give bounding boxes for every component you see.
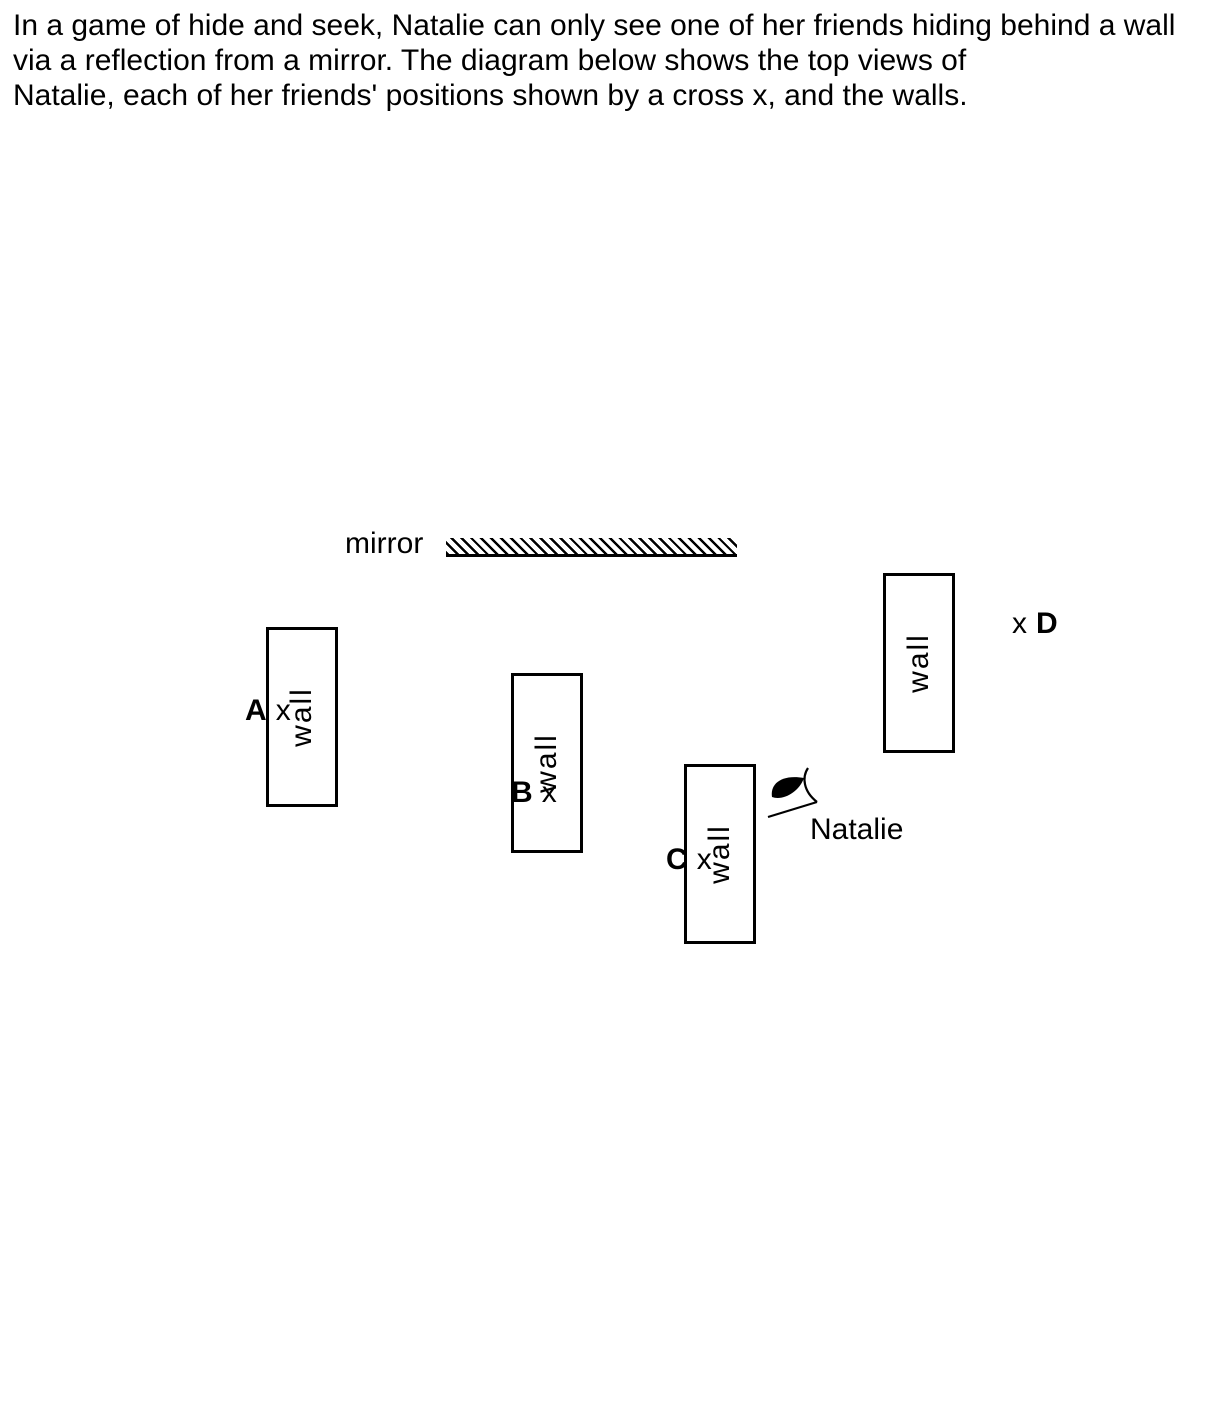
question-paragraph: Which of her friends, A, B, C or D, can … bbox=[13, 1298, 1205, 1406]
wall-label-a: wall bbox=[287, 687, 317, 747]
friend-c-cross: x bbox=[697, 843, 712, 876]
wall-rect-d: wall bbox=[883, 573, 955, 753]
diagram: mirror wall wall wall wall Ax Bx Cx xD bbox=[0, 0, 1208, 1406]
friend-c-letter: C bbox=[666, 843, 688, 876]
friend-a-marker: Ax bbox=[195, 666, 291, 756]
natalie-label: Natalie bbox=[810, 815, 903, 845]
friend-b-letter: B bbox=[511, 776, 533, 809]
question-line-1: Which of her friends, A, B, C or D, can … bbox=[13, 1368, 1205, 1406]
friend-d-cross: x bbox=[1012, 607, 1027, 640]
friend-b-cross: x bbox=[542, 776, 557, 809]
friend-d-letter: D bbox=[1036, 607, 1058, 640]
mirror-label: mirror bbox=[345, 529, 423, 559]
friend-b-marker: Bx bbox=[461, 748, 557, 838]
friend-d-marker: xD bbox=[962, 579, 1058, 669]
mirror-surface bbox=[446, 538, 737, 557]
friend-a-letter: A bbox=[245, 694, 267, 727]
worksheet-page: In a game of hide and seek, Natalie can … bbox=[0, 0, 1208, 1406]
eye-icon bbox=[766, 766, 820, 820]
friend-a-cross: x bbox=[276, 694, 291, 727]
friend-c-marker: Cx bbox=[616, 815, 712, 905]
wall-label-d: wall bbox=[904, 633, 934, 693]
